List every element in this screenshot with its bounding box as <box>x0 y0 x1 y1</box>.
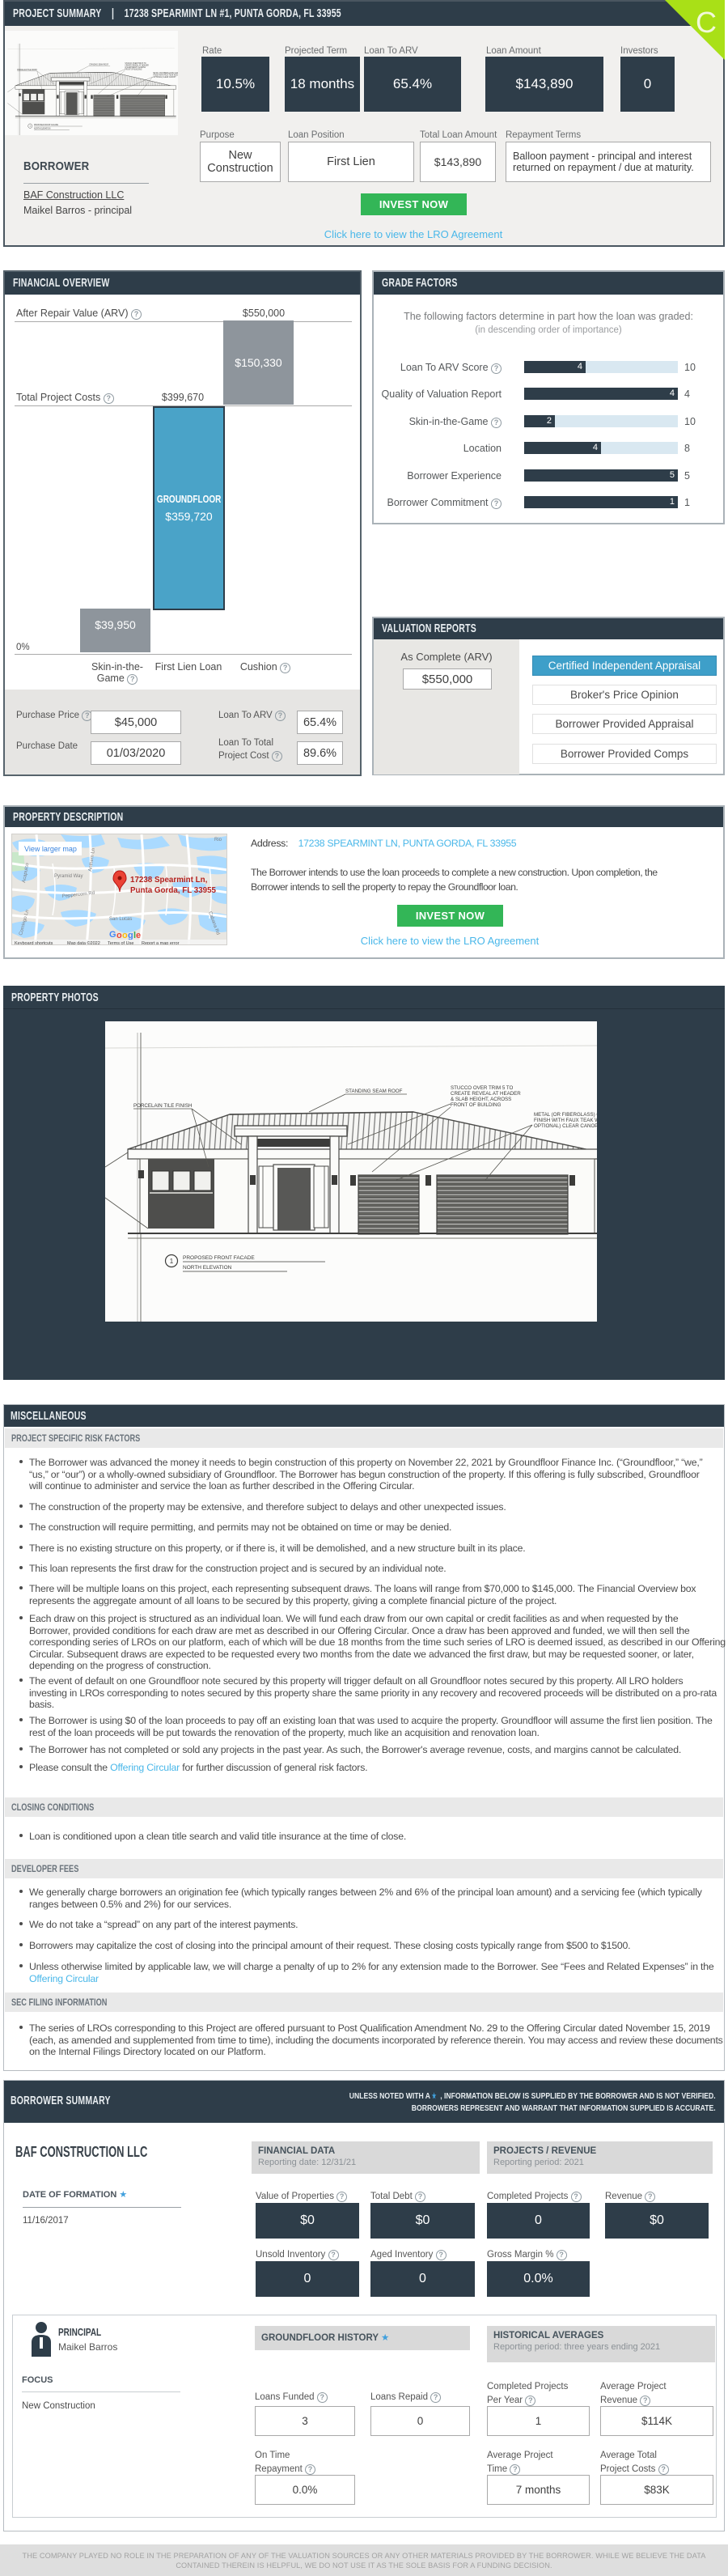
svg-text:C: C <box>696 6 717 39</box>
svg-text:Pyramid Way: Pyramid Way <box>54 874 83 879</box>
svg-text:Rio: Rio <box>214 838 222 842</box>
svg-text:o: o <box>116 931 122 940</box>
svg-text:Report a map error: Report a map error <box>142 941 180 945</box>
svg-text:17238 Spearmint Ln,: 17238 Spearmint Ln, <box>130 876 208 885</box>
svg-text:San Lucas: San Lucas <box>109 917 132 922</box>
svg-text:Keyboard shortcuts: Keyboard shortcuts <box>15 941 53 945</box>
svg-text:Terms of Use: Terms of Use <box>108 941 133 945</box>
svg-text:e: e <box>136 931 141 940</box>
svg-text:G: G <box>109 930 116 940</box>
svg-text:Punta Gorda, FL 33955: Punta Gorda, FL 33955 <box>130 886 217 895</box>
svg-text:View larger map: View larger map <box>24 845 77 853</box>
svg-text:Map data ©2022: Map data ©2022 <box>67 940 100 945</box>
svg-text:o: o <box>122 931 128 940</box>
svg-text:g: g <box>128 931 133 940</box>
